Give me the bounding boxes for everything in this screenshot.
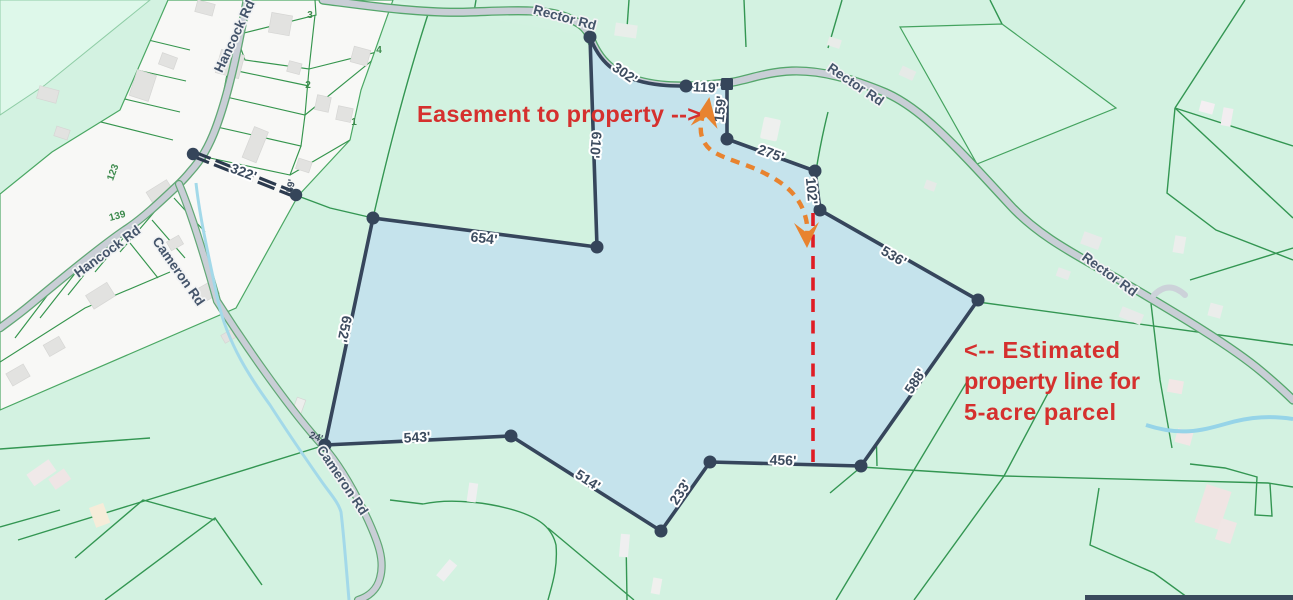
svg-text:102': 102' [803,177,821,205]
svg-text:59': 59' [285,178,298,193]
svg-text:610': 610' [587,131,605,159]
svg-text:2: 2 [305,80,311,91]
svg-text:Easement to property -->: Easement to property --> [417,101,701,127]
svg-text:5-acre parcel: 5-acre parcel [964,399,1116,425]
svg-text:1: 1 [351,117,357,128]
svg-text:3: 3 [307,10,313,21]
svg-text:property line for: property line for [964,368,1140,394]
svg-text:<-- Estimated: <-- Estimated [964,337,1120,363]
svg-text:654': 654' [470,228,498,247]
svg-text:119': 119' [693,78,720,95]
svg-text:543': 543' [403,428,430,445]
svg-text:4: 4 [376,45,382,56]
svg-text:456': 456' [769,452,796,469]
